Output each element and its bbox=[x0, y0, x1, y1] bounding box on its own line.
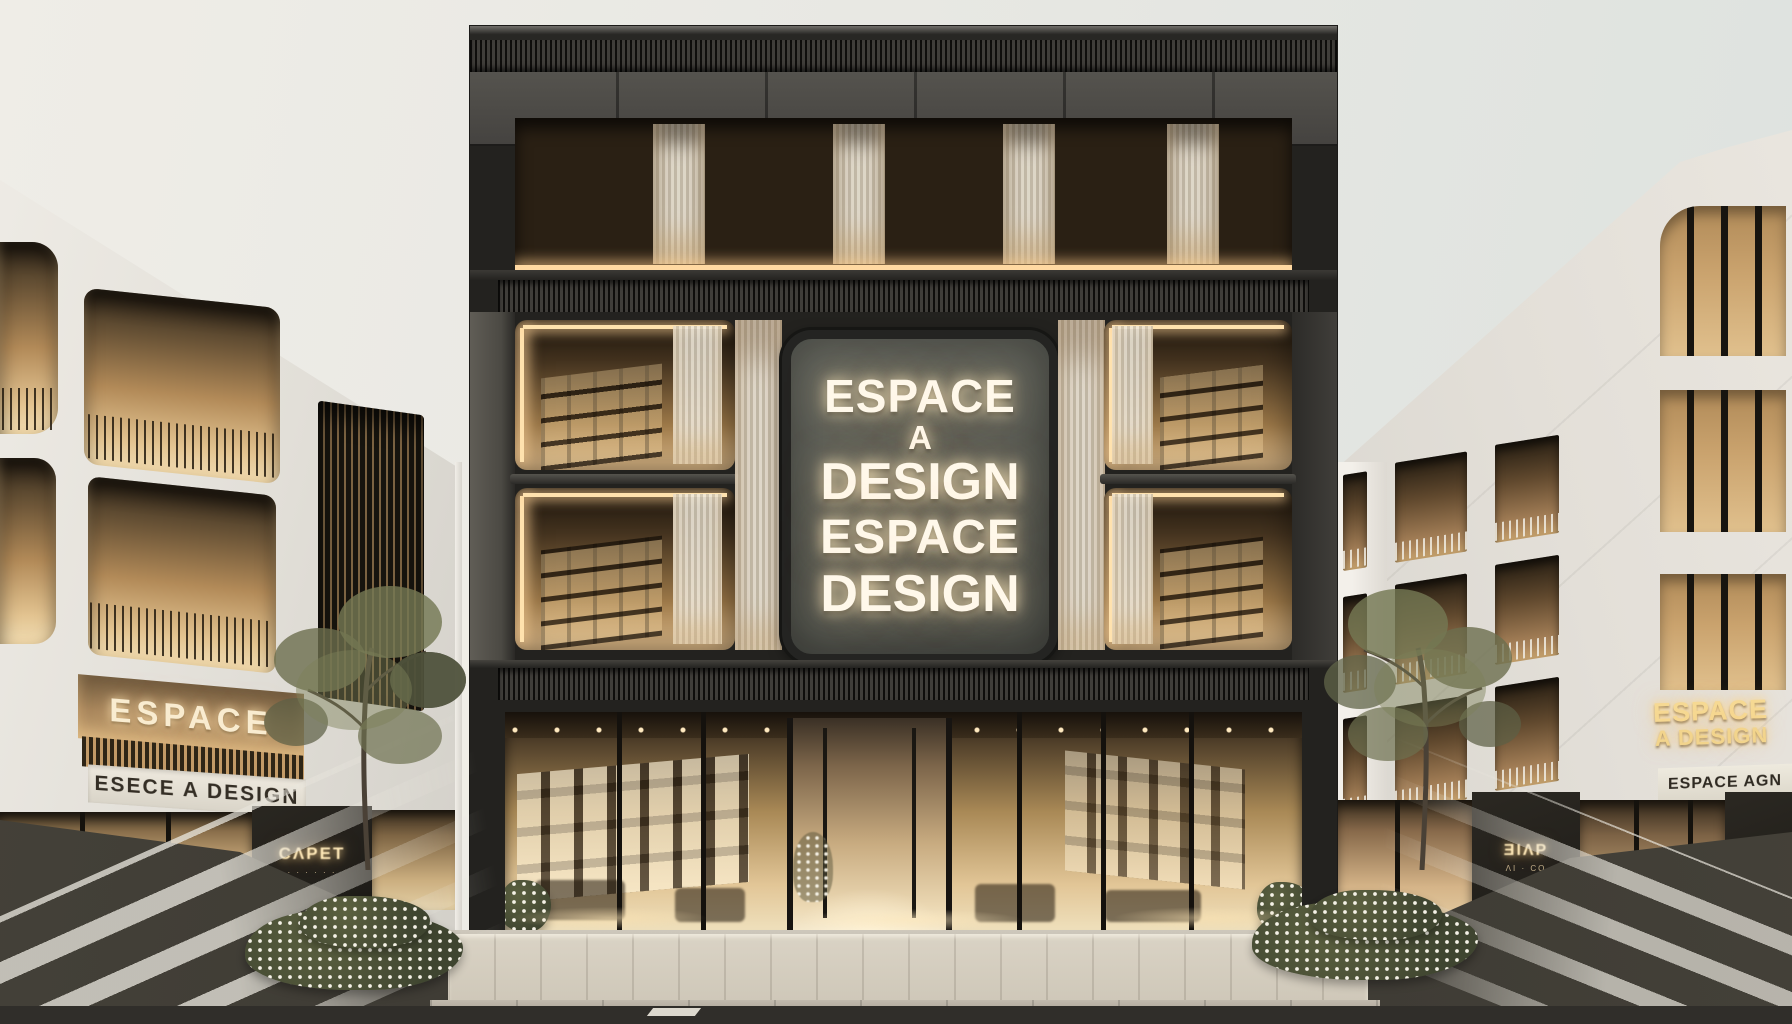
storefront-mullion bbox=[1017, 712, 1022, 934]
ledge bbox=[470, 660, 1337, 668]
storefront-mullion bbox=[701, 712, 706, 934]
curtain bbox=[673, 494, 721, 643]
curtain bbox=[1003, 124, 1055, 264]
roof-cap bbox=[470, 26, 1337, 40]
window bbox=[1660, 390, 1786, 532]
ledge bbox=[510, 474, 740, 484]
main-building: ESPACE A DESIGN ESPACE DESIGN bbox=[470, 26, 1337, 964]
window bbox=[1660, 574, 1786, 690]
sign-line-3: DESIGN bbox=[820, 456, 1019, 508]
balcony-railing bbox=[2, 388, 56, 430]
display-window bbox=[515, 488, 735, 650]
curtain bbox=[653, 124, 705, 264]
white-flower-arrangement bbox=[793, 832, 833, 902]
right-building-sub-sign: ESPACE AGN bbox=[1668, 772, 1782, 794]
curtain bbox=[1112, 326, 1153, 464]
flower-bush-left bbox=[300, 896, 430, 948]
main-espace-design-sign: ESPACE A DESIGN ESPACE DESIGN bbox=[782, 330, 1058, 663]
sign-line-5: DESIGN bbox=[820, 568, 1019, 620]
top-floor-windows bbox=[515, 118, 1292, 270]
gold-sign-line2: A DESIGN bbox=[1654, 723, 1768, 751]
ledge bbox=[470, 270, 1337, 280]
curtain-column bbox=[1058, 320, 1105, 650]
road-marking bbox=[647, 1008, 701, 1016]
curtain bbox=[673, 326, 721, 464]
window bbox=[1495, 435, 1559, 543]
curtain bbox=[1112, 494, 1153, 643]
street-scene: ESPACE ESECE A DESIGN CΛPET · · · · · · … bbox=[0, 0, 1792, 1024]
left-building-window bbox=[0, 458, 56, 644]
flower-bush-right bbox=[1310, 890, 1442, 940]
grille-band-top bbox=[470, 40, 1337, 72]
ground-floor-storefront bbox=[505, 712, 1302, 934]
right-building-gold-sign: ESPACE A DESIGN bbox=[1644, 684, 1779, 763]
pillar-left bbox=[470, 312, 515, 660]
display-window bbox=[1104, 320, 1292, 470]
curtain-column bbox=[735, 320, 782, 650]
window bbox=[1395, 573, 1467, 684]
sign-line-1: ESPACE bbox=[824, 373, 1016, 419]
road-bottom bbox=[0, 1006, 1792, 1024]
slatted-corner-panel bbox=[318, 401, 424, 712]
storefront-mullion bbox=[617, 712, 622, 934]
ledge bbox=[1100, 474, 1296, 484]
window bbox=[1343, 471, 1367, 571]
grille-band-middle bbox=[498, 280, 1309, 312]
window bbox=[1495, 555, 1559, 665]
open-glass-door[interactable] bbox=[912, 728, 916, 918]
display-window bbox=[515, 320, 735, 470]
sign-line-2: A bbox=[908, 421, 932, 454]
entrance-plaza-paving bbox=[448, 934, 1368, 1006]
curtain bbox=[1167, 124, 1219, 264]
pillar-right bbox=[1292, 312, 1337, 660]
display-shelves bbox=[541, 364, 662, 470]
gallery-wall bbox=[1065, 751, 1245, 890]
storefront-mullion bbox=[1189, 712, 1194, 934]
window bbox=[1495, 677, 1559, 791]
display-window bbox=[1104, 488, 1292, 650]
window bbox=[1660, 206, 1786, 356]
display-shelves bbox=[541, 536, 662, 650]
display-shelves bbox=[1160, 365, 1263, 470]
curtain bbox=[833, 124, 885, 264]
grille-band-bottom bbox=[498, 668, 1309, 700]
window bbox=[1395, 451, 1467, 562]
window bbox=[1343, 593, 1367, 693]
storefront-mullion bbox=[1101, 712, 1106, 934]
display-shelves bbox=[1160, 537, 1263, 650]
storefront-light-pools bbox=[440, 902, 1380, 942]
sign-line-4: ESPACE bbox=[820, 514, 1020, 562]
